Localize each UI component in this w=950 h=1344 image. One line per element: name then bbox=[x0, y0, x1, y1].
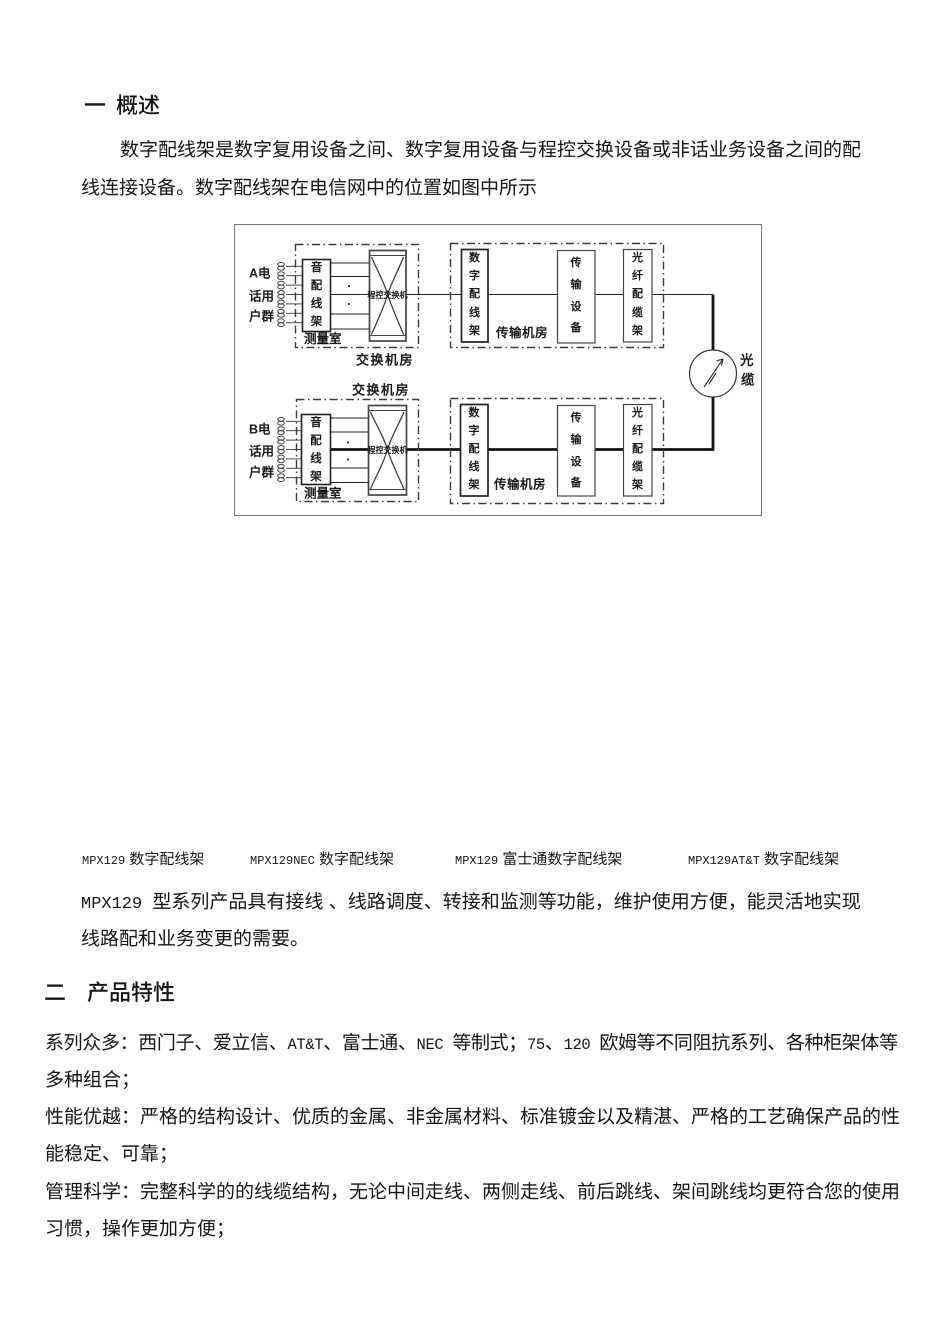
svg-text:架: 架 bbox=[468, 322, 480, 338]
svg-text:输: 输 bbox=[571, 276, 583, 292]
svg-text:户群: 户群 bbox=[249, 462, 275, 481]
svg-text:程控交换机: 程控交换机 bbox=[368, 289, 408, 301]
svg-text:缆: 缆 bbox=[632, 458, 643, 474]
svg-text:架: 架 bbox=[631, 322, 643, 338]
svg-text:数: 数 bbox=[469, 249, 481, 265]
svg-text:音: 音 bbox=[311, 259, 323, 275]
svg-text:测量室: 测量室 bbox=[304, 483, 342, 502]
svg-text:线: 线 bbox=[469, 304, 480, 320]
svg-text:话用: 话用 bbox=[249, 286, 274, 305]
svg-text:光: 光 bbox=[631, 404, 643, 420]
svg-text:配: 配 bbox=[632, 440, 643, 456]
svg-text:传输机房: 传输机房 bbox=[495, 322, 548, 341]
svg-text:数: 数 bbox=[469, 404, 481, 420]
svg-text:线: 线 bbox=[310, 450, 322, 466]
svg-text:纤: 纤 bbox=[632, 422, 643, 438]
svg-text:架: 架 bbox=[468, 476, 480, 492]
svg-text:音: 音 bbox=[310, 414, 322, 430]
svg-text:测量室: 测量室 bbox=[304, 328, 342, 347]
svg-text:传输机房: 传输机房 bbox=[493, 474, 546, 493]
svg-text:配: 配 bbox=[469, 285, 480, 301]
svg-text:输: 输 bbox=[571, 431, 583, 447]
svg-text:传: 传 bbox=[570, 254, 582, 270]
svg-text:字: 字 bbox=[469, 267, 480, 283]
svg-text:A电: A电 bbox=[249, 263, 271, 282]
svg-text:缆: 缆 bbox=[741, 369, 755, 389]
svg-text:户群: 户群 bbox=[249, 306, 275, 325]
svg-text:设: 设 bbox=[571, 453, 583, 469]
svg-text:交换机房: 交换机房 bbox=[352, 380, 410, 399]
svg-text:话用: 话用 bbox=[249, 441, 274, 460]
svg-text:配: 配 bbox=[311, 277, 323, 293]
svg-text:线: 线 bbox=[469, 458, 480, 474]
svg-text:B电: B电 bbox=[249, 419, 271, 438]
svg-text:字: 字 bbox=[469, 422, 480, 438]
svg-text:线: 线 bbox=[311, 295, 323, 311]
svg-text:交换机房: 交换机房 bbox=[356, 350, 414, 369]
svg-text:备: 备 bbox=[570, 319, 583, 335]
svg-text:架: 架 bbox=[631, 476, 643, 492]
svg-text:程控交换机: 程控交换机 bbox=[368, 444, 408, 456]
svg-text:配: 配 bbox=[310, 432, 322, 448]
svg-text:配: 配 bbox=[632, 285, 643, 301]
svg-text:光: 光 bbox=[739, 349, 754, 369]
svg-text:架: 架 bbox=[310, 313, 323, 329]
svg-text:备: 备 bbox=[570, 474, 583, 490]
svg-text:传: 传 bbox=[570, 409, 582, 425]
svg-text:配: 配 bbox=[469, 440, 480, 456]
svg-text:光: 光 bbox=[631, 249, 643, 265]
svg-text:设: 设 bbox=[571, 298, 583, 314]
svg-text:纤: 纤 bbox=[632, 267, 643, 283]
svg-text:缆: 缆 bbox=[632, 304, 643, 320]
